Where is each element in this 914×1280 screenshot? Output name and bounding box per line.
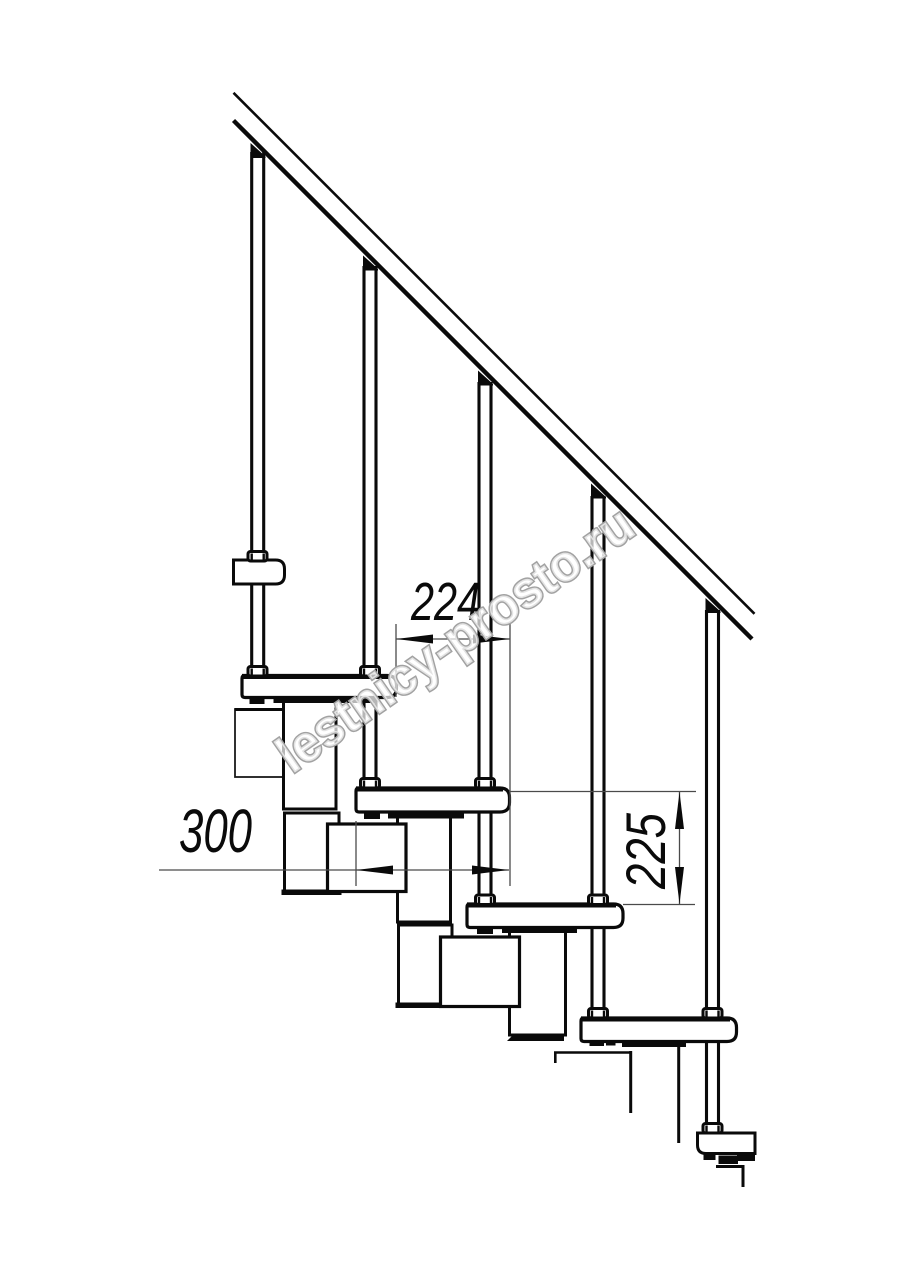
svg-text:225: 225 [614,812,677,890]
svg-text:300: 300 [179,797,252,865]
